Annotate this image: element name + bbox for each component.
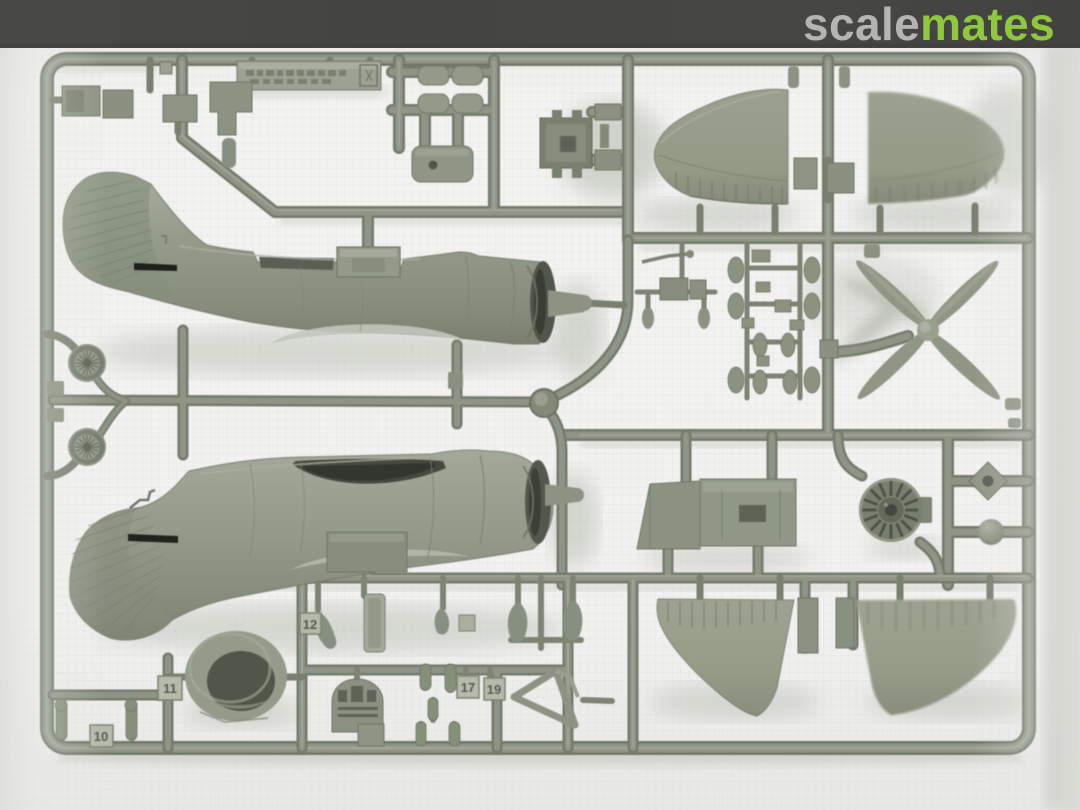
svg-text:scalemates: scalemates [803, 0, 1055, 50]
